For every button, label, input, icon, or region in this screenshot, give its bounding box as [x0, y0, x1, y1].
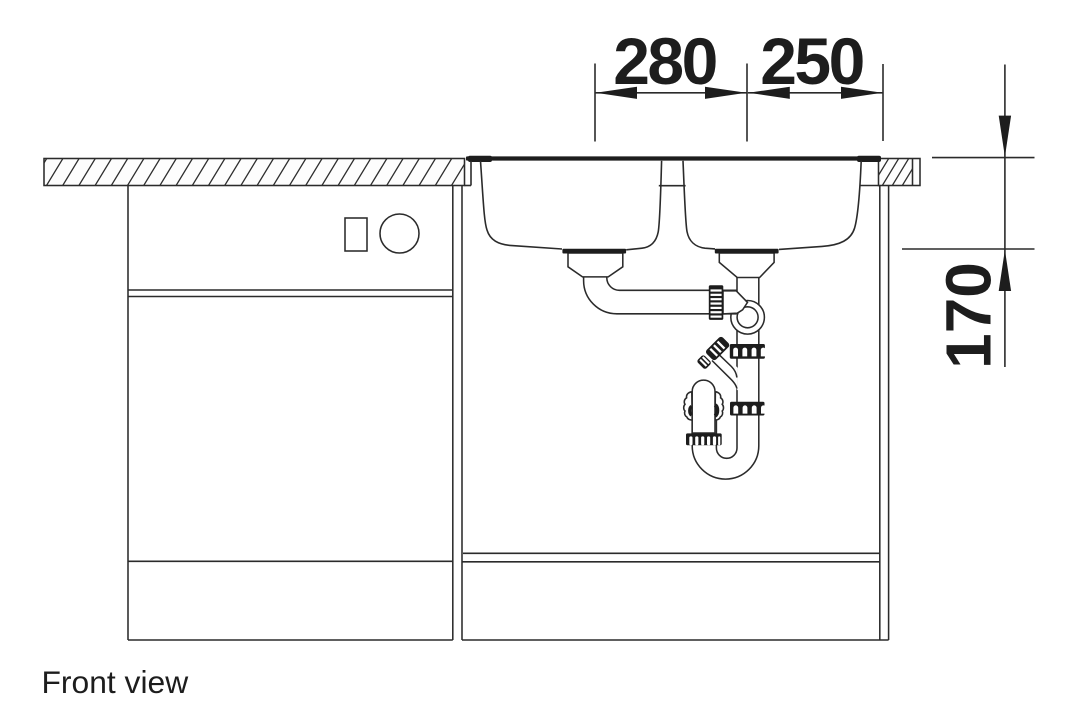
svg-text:280: 280: [613, 24, 716, 98]
svg-text:250: 250: [760, 24, 863, 98]
svg-text:170: 170: [933, 262, 1005, 369]
svg-text:Front view: Front view: [42, 664, 190, 700]
